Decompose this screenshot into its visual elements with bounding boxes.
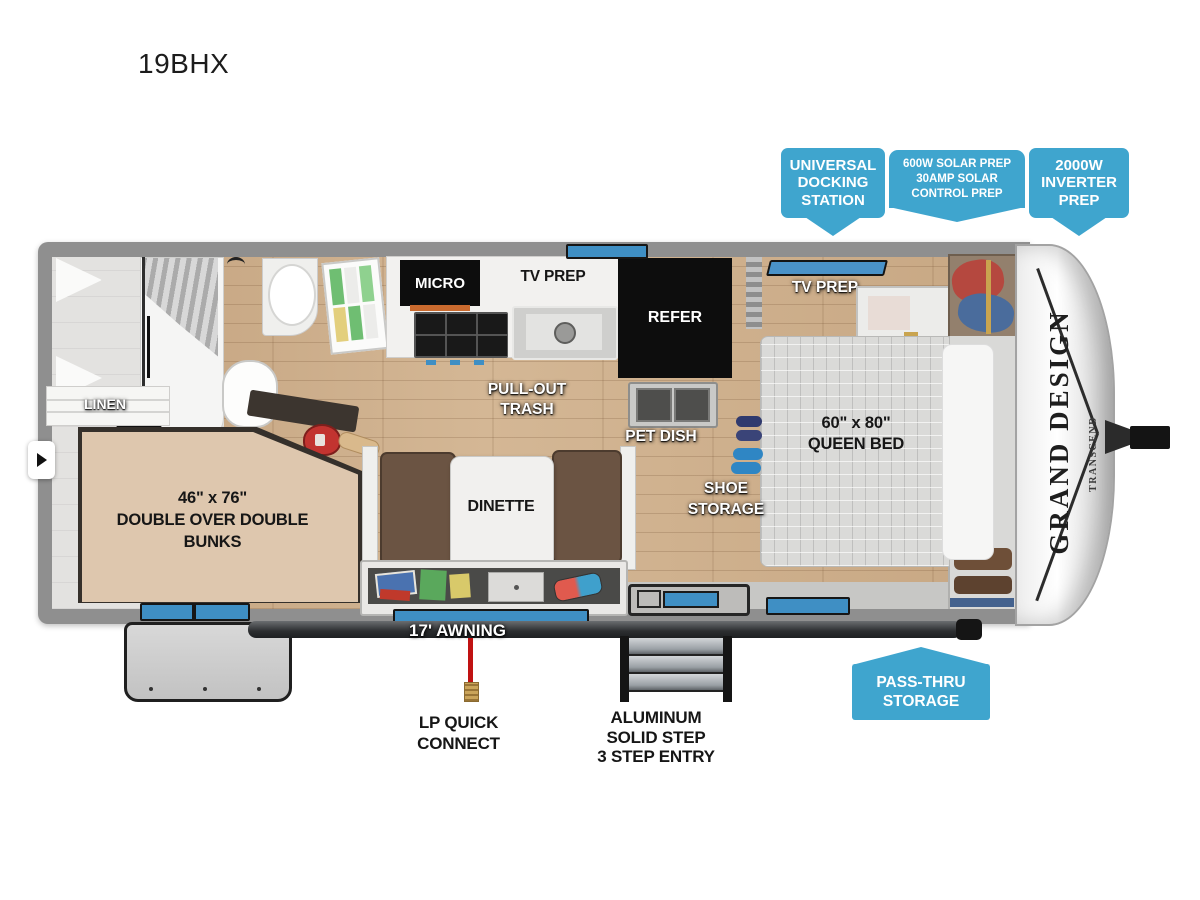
shoes <box>736 430 762 441</box>
dinette-wall-post <box>620 446 636 570</box>
hitch-taper <box>1105 420 1131 454</box>
callout-line: UNIVERSAL <box>781 157 885 175</box>
bedroom-window <box>766 597 850 615</box>
shoes <box>736 416 762 427</box>
microwave: MICRO <box>400 260 480 306</box>
entry-door-window <box>663 591 719 608</box>
board-game-box <box>449 573 471 598</box>
awning-label: 17' AWNING <box>370 621 545 641</box>
dinette-wall-post <box>362 446 378 570</box>
shoe-storage-label: SHOE STORAGE <box>666 478 786 520</box>
callout-line: INVERTER <box>1029 174 1129 192</box>
pantry-bin <box>333 307 348 342</box>
accordion-divider <box>746 257 762 329</box>
dinette-bench-right <box>552 450 622 564</box>
wardrobe <box>948 254 1022 340</box>
right-triangle-icon <box>37 453 47 467</box>
step-tread <box>629 674 723 692</box>
callout-line: CONTROL PREP <box>889 187 1025 202</box>
callout-line: 600W SOLAR PREP <box>889 157 1025 172</box>
linen-label: LINEN <box>50 396 160 412</box>
entry-steps-label: ALUMINUM SOLID STEP 3 STEP ENTRY <box>576 708 736 767</box>
stove-knob <box>426 360 436 365</box>
refer-label: REFER <box>648 309 702 327</box>
micro-label: MICRO <box>415 275 465 292</box>
series-logo: TRANSCEND <box>1088 388 1104 520</box>
pull-out-trash-label: PULL-OUT TRASH <box>467 380 587 420</box>
board-game-box <box>380 589 411 601</box>
storage-floor-strip <box>950 598 1014 607</box>
bathroom-sink <box>268 264 316 326</box>
oven-handle <box>410 305 470 311</box>
bunk-window <box>140 603 250 621</box>
callout-line: 2000W <box>1029 157 1129 175</box>
shower-fixture <box>147 316 150 378</box>
callout-line: STATION <box>781 192 885 210</box>
lp-quick-connect-line <box>468 638 473 684</box>
floorplan-page: 19BHX UNIVERSAL DOCKING STATION 600W SOL… <box>0 0 1200 900</box>
dinette-bench-left <box>380 452 456 566</box>
board-game-box <box>419 569 447 600</box>
sink-drain-icon <box>554 322 576 344</box>
hitch-coupler <box>1130 426 1170 449</box>
awning-end-cap <box>956 619 982 640</box>
step-tread <box>629 638 723 656</box>
pet-dish-label: PET DISH <box>606 428 716 446</box>
pantry-bin <box>348 305 363 340</box>
page-title: 19BHX <box>138 48 229 80</box>
pet-dish <box>628 382 718 428</box>
shoes <box>731 462 761 474</box>
callout-pointer <box>889 207 1025 222</box>
pantry-bin <box>363 304 378 339</box>
callout-line: DOCKING <box>781 174 885 192</box>
closet-rod <box>986 260 991 334</box>
callout-pointer <box>1051 217 1107 236</box>
kitchen-tv-prep-label: TV PREP <box>498 268 608 286</box>
bedroom-tv <box>766 260 888 276</box>
kitchen-window <box>566 244 644 255</box>
queen-bed-label: 60" x 80" QUEEN BED <box>786 413 926 455</box>
refrigerator: REFER <box>618 258 732 378</box>
pantry-bin <box>344 267 360 304</box>
lp-quick-connect-label: LP QUICK CONNECT <box>396 712 521 754</box>
pass-thru-storage-callout: PASS-THRU STORAGE <box>852 664 990 720</box>
stove-cooktop <box>414 312 508 358</box>
firewood <box>954 576 1012 594</box>
brand-logo: GRAND DESIGN <box>1044 248 1084 616</box>
ceiling-vent-icon <box>227 257 245 272</box>
under-dinette-storage <box>360 560 628 616</box>
step-rail <box>620 636 629 702</box>
callout-line: PREP <box>1029 192 1129 210</box>
stove-knob <box>450 360 460 365</box>
step-rail <box>723 636 732 702</box>
callout-pointer <box>805 217 861 236</box>
step-tread <box>629 656 723 674</box>
dinette-label: DINETTE <box>448 498 554 516</box>
kitchen-sink <box>512 306 618 360</box>
solar-prep-callout: 600W SOLAR PREP 30AMP SOLAR CONTROL PREP <box>889 150 1025 208</box>
lp-connector <box>464 682 479 702</box>
awning-rail <box>248 621 962 638</box>
inverter-prep-callout: 2000W INVERTER PREP <box>1029 148 1129 218</box>
shoes <box>733 448 763 460</box>
next-slide-button[interactable] <box>28 441 55 479</box>
overhead-cabinet <box>856 286 952 342</box>
bunks-label: 46" x 76" DOUBLE OVER DOUBLE BUNKS <box>95 487 330 553</box>
callout-line: 30AMP SOLAR <box>889 172 1025 187</box>
callout-pointer <box>852 647 990 665</box>
storage-drawer <box>488 572 544 602</box>
universal-docking-callout: UNIVERSAL DOCKING STATION <box>781 148 885 218</box>
bed-pillows <box>942 344 994 560</box>
pantry-bin <box>359 265 375 302</box>
pantry-bin <box>329 268 345 305</box>
stove-knob <box>474 360 484 365</box>
entry-door <box>628 584 750 616</box>
pantry-cabinet <box>321 257 388 355</box>
